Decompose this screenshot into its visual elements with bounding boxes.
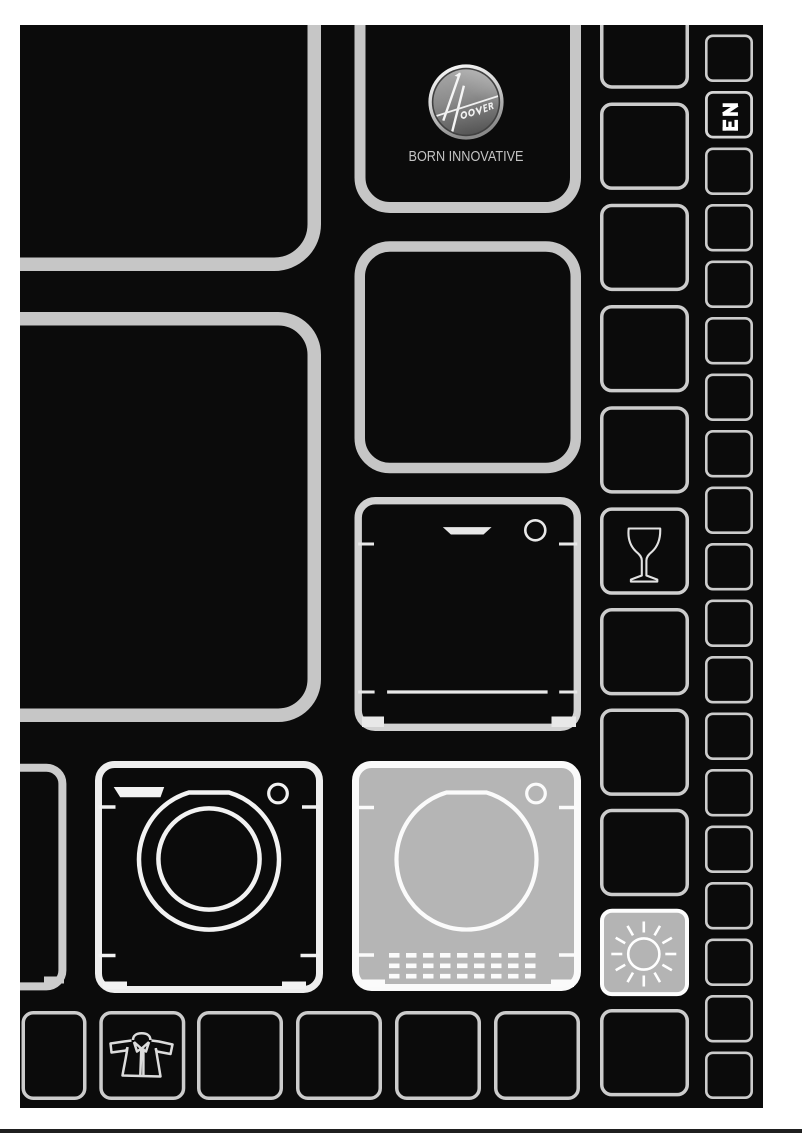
svg-text:BORN INNOVATIVE: BORN INNOVATIVE: [409, 149, 524, 165]
